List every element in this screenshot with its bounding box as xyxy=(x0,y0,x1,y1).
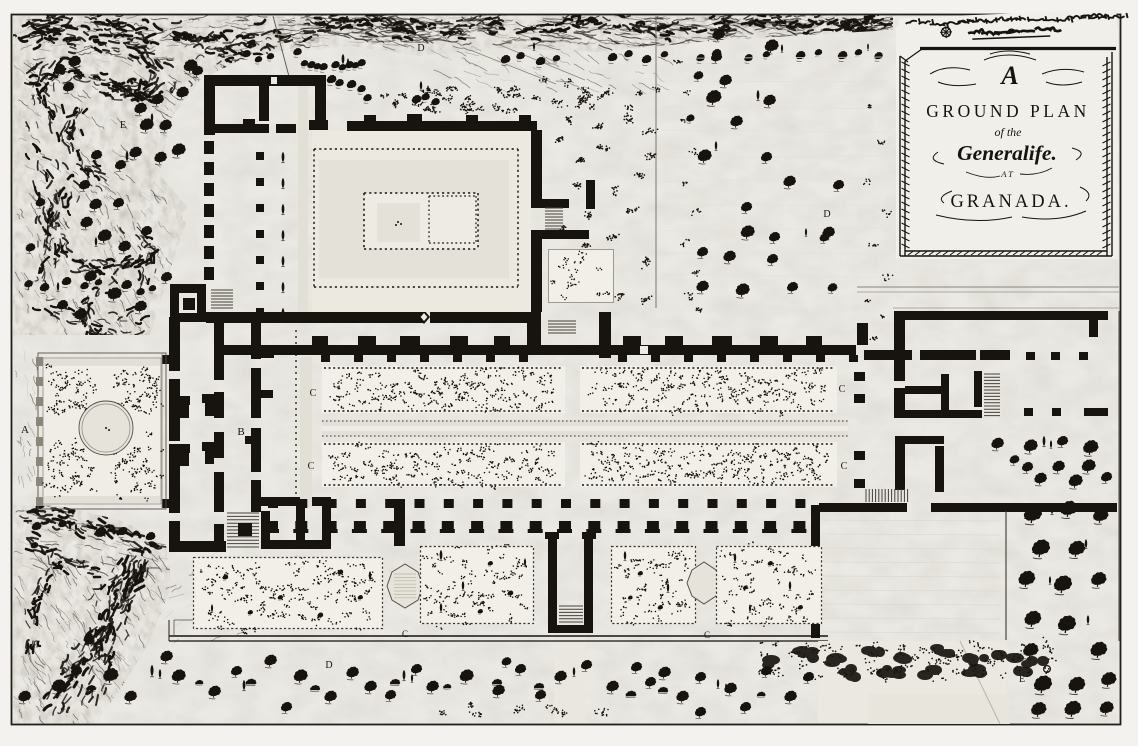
svg-text:C: C xyxy=(839,384,846,395)
svg-text:D: D xyxy=(325,660,332,671)
svg-text:E: E xyxy=(1019,674,1025,685)
svg-text:E: E xyxy=(120,120,126,131)
svg-text:of the: of the xyxy=(995,125,1023,139)
svg-text:C: C xyxy=(704,630,710,640)
svg-text:Generalife.: Generalife. xyxy=(957,141,1057,165)
svg-text:C: C xyxy=(402,629,408,639)
svg-text:A: A xyxy=(999,61,1018,90)
svg-text:GRANADA.: GRANADA. xyxy=(950,192,1071,212)
svg-text:C: C xyxy=(841,461,848,472)
svg-text:D: D xyxy=(417,43,424,54)
svg-text:B: B xyxy=(237,426,244,438)
svg-text:D: D xyxy=(823,209,830,220)
svg-text:GROUND PLAN: GROUND PLAN xyxy=(926,101,1089,121)
svg-text:AT: AT xyxy=(1000,169,1015,179)
svg-text:A: A xyxy=(21,424,29,436)
svg-text:C: C xyxy=(308,461,315,472)
svg-text:C: C xyxy=(310,388,317,399)
